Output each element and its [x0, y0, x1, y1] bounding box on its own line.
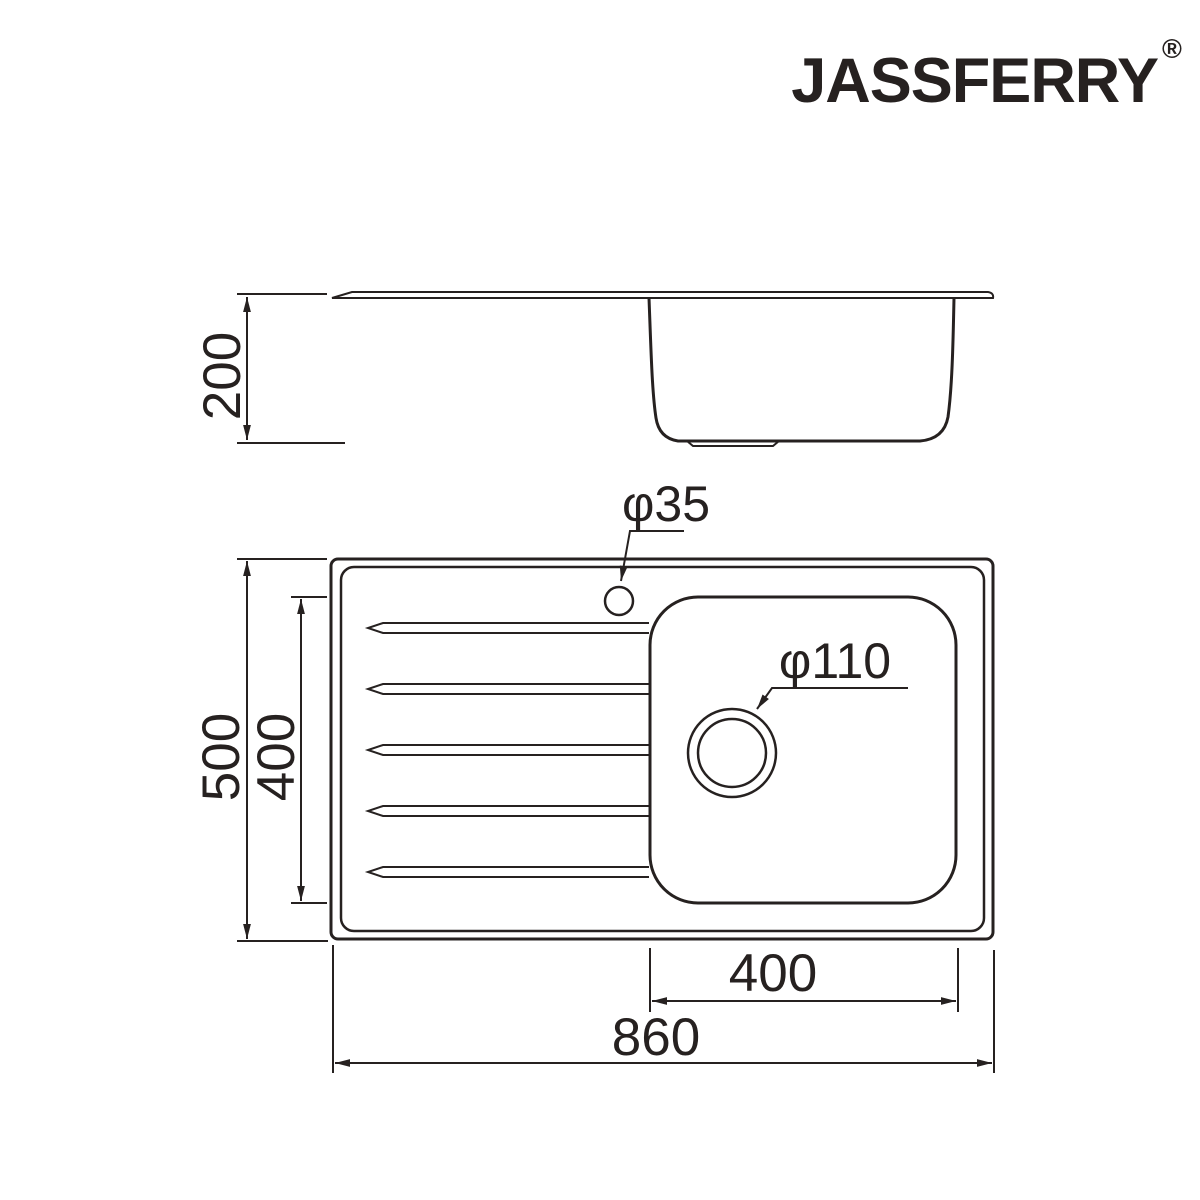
callout-waste-hole-leader	[757, 688, 908, 709]
brand-logo: JASSFERRY ®	[791, 34, 1182, 116]
drawing-canvas: JASSFERRY ® 200	[0, 0, 1200, 1200]
callout-waste-hole: φ110	[757, 633, 908, 709]
sink-technical-drawing: JASSFERRY ® 200	[0, 0, 1200, 1200]
callout-waste-hole-label: φ110	[779, 633, 891, 689]
drainer-grooves	[368, 623, 649, 877]
tap-hole	[605, 587, 633, 615]
brand-logo-text: JASSFERRY	[791, 46, 1158, 116]
drainer-groove	[368, 745, 649, 755]
dimension-value-bowl-width: 400	[247, 713, 306, 801]
countertop-profile	[332, 292, 993, 298]
top-plan-view: φ35 φ110 500 400 400	[192, 476, 994, 1073]
registered-trademark-symbol: ®	[1162, 34, 1182, 64]
dimension-value-bowl-length: 400	[729, 944, 817, 1003]
drainer-groove	[368, 684, 649, 694]
waste-hole-inner-circle	[698, 719, 766, 787]
sink-outer-edge	[331, 559, 993, 939]
dimension-bowl-depth: 200	[193, 294, 345, 443]
dimension-value-depth: 200	[193, 332, 252, 420]
dimension-value-overall-length: 860	[612, 1008, 700, 1067]
dimension-overall-length: 860	[333, 945, 994, 1073]
callout-tap-hole-label: φ35	[622, 476, 710, 532]
dimension-bowl-length: 400	[650, 944, 958, 1012]
drainer-groove	[368, 867, 649, 877]
dimension-value-overall-width: 500	[192, 713, 251, 801]
waste-hole-outer-circle	[688, 709, 776, 797]
dimension-bowl-width: 400	[247, 597, 327, 903]
side-elevation-view: 200	[193, 292, 993, 446]
callout-tap-hole: φ35	[621, 476, 710, 581]
drainer-groove	[368, 806, 649, 816]
drainer-groove	[368, 623, 649, 633]
waste-hole	[688, 709, 776, 797]
callout-tap-hole-leader	[621, 531, 684, 581]
bowl-profile	[649, 298, 954, 441]
